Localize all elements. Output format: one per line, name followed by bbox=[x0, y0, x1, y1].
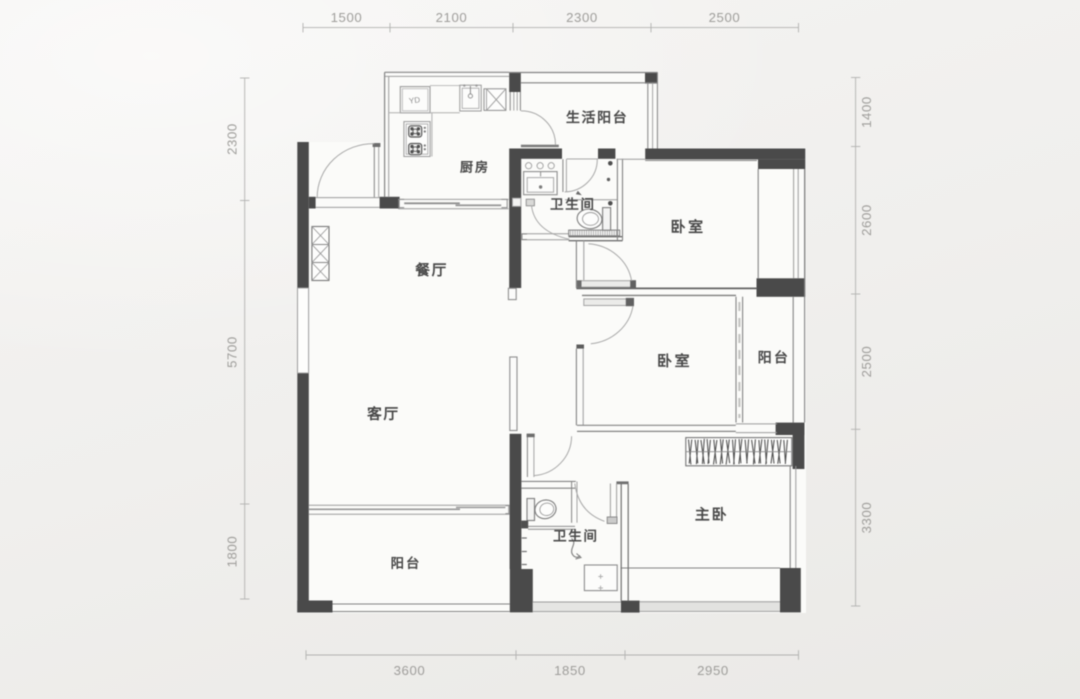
svg-text:2500: 2500 bbox=[709, 10, 741, 25]
svg-text:2950: 2950 bbox=[697, 663, 729, 678]
svg-text:1500: 1500 bbox=[331, 10, 363, 25]
svg-text:2600: 2600 bbox=[859, 204, 874, 236]
svg-text:YD: YD bbox=[408, 95, 420, 105]
svg-text:1850: 1850 bbox=[554, 663, 586, 678]
svg-text:1400: 1400 bbox=[859, 96, 874, 128]
svg-text:3600: 3600 bbox=[394, 663, 426, 678]
svg-text:3300: 3300 bbox=[859, 502, 874, 534]
svg-text:2500: 2500 bbox=[859, 346, 874, 378]
svg-text:2100: 2100 bbox=[436, 10, 468, 25]
svg-text:1800: 1800 bbox=[225, 536, 240, 568]
svg-text:2300: 2300 bbox=[225, 123, 240, 155]
svg-text:2300: 2300 bbox=[566, 10, 598, 25]
svg-text:5700: 5700 bbox=[225, 336, 240, 368]
